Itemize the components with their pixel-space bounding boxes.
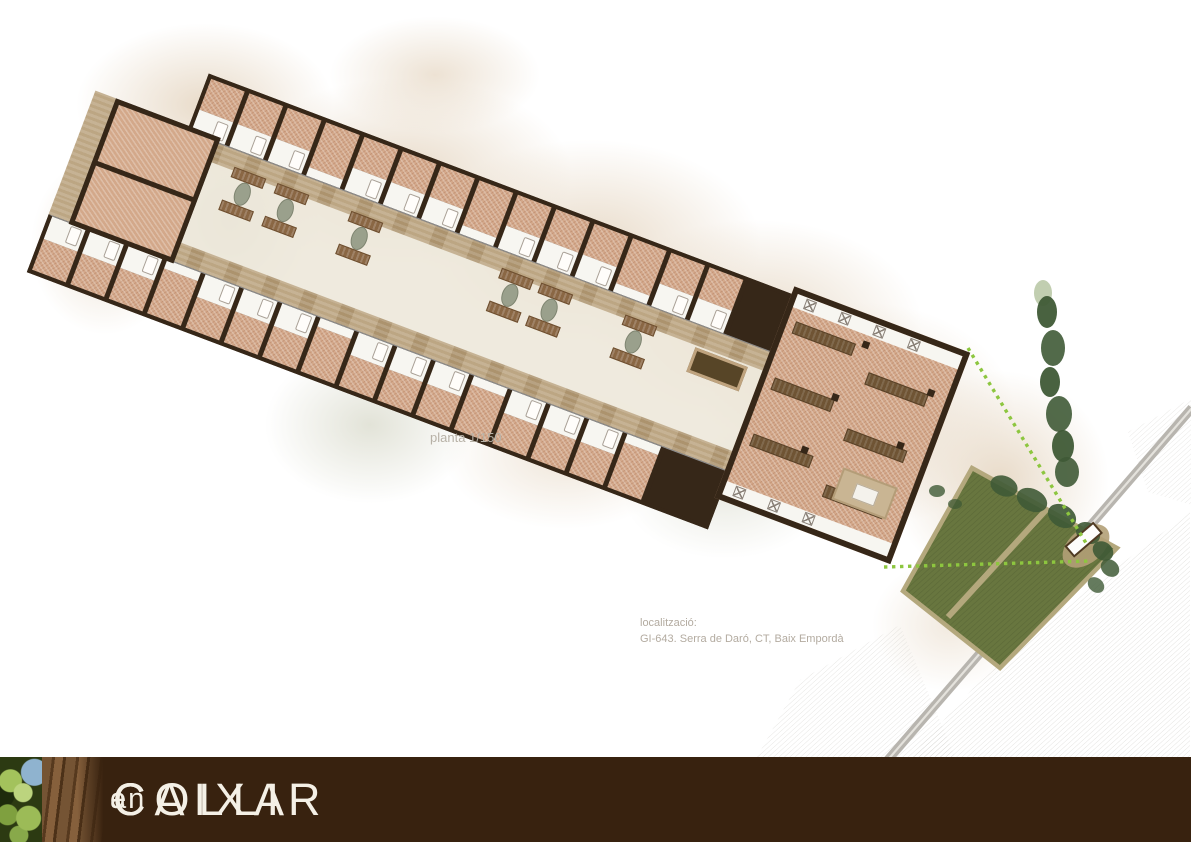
picnic-table-group (486, 268, 534, 323)
picnic-table-group (218, 167, 266, 222)
kitchen-sink (851, 483, 879, 506)
presentation-board: planta 1/150 localització: GI-643. Serra… (0, 0, 1191, 842)
hall-column (861, 340, 870, 349)
hall-table (770, 377, 834, 412)
location-value: GI-643. Serra de Daró, CT, Baix Empordà (640, 632, 844, 648)
hall-table (792, 321, 856, 356)
picnic-table-group (609, 314, 657, 369)
picnic-table-group (335, 211, 383, 266)
location-label: localització: GI-643. Serra de Daró, CT,… (640, 616, 844, 648)
picnic-table-group (261, 183, 309, 238)
apple-photo-strip (0, 757, 42, 842)
title-big-2: CAIXA (113, 774, 293, 826)
plan-scale-label: planta 1/150 (430, 430, 502, 445)
footer-bar: a COLLIR en CAIXA projecte de: trestrast… (0, 757, 1191, 842)
location-title: localització: (640, 616, 844, 632)
picnic-table-group (525, 283, 573, 338)
hall-table (864, 372, 928, 407)
project-title: a COLLIR en CAIXA (110, 757, 570, 842)
wooden-crate-photo (42, 757, 106, 842)
